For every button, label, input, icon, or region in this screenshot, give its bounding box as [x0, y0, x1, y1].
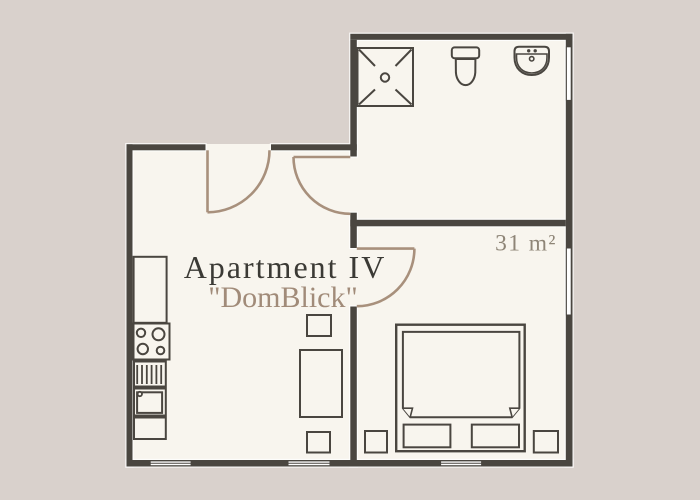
svg-text:31 m²: 31 m² [495, 231, 557, 257]
svg-text:"DomBlick": "DomBlick" [208, 281, 358, 314]
svg-text:Apartment IV: Apartment IV [184, 249, 387, 285]
